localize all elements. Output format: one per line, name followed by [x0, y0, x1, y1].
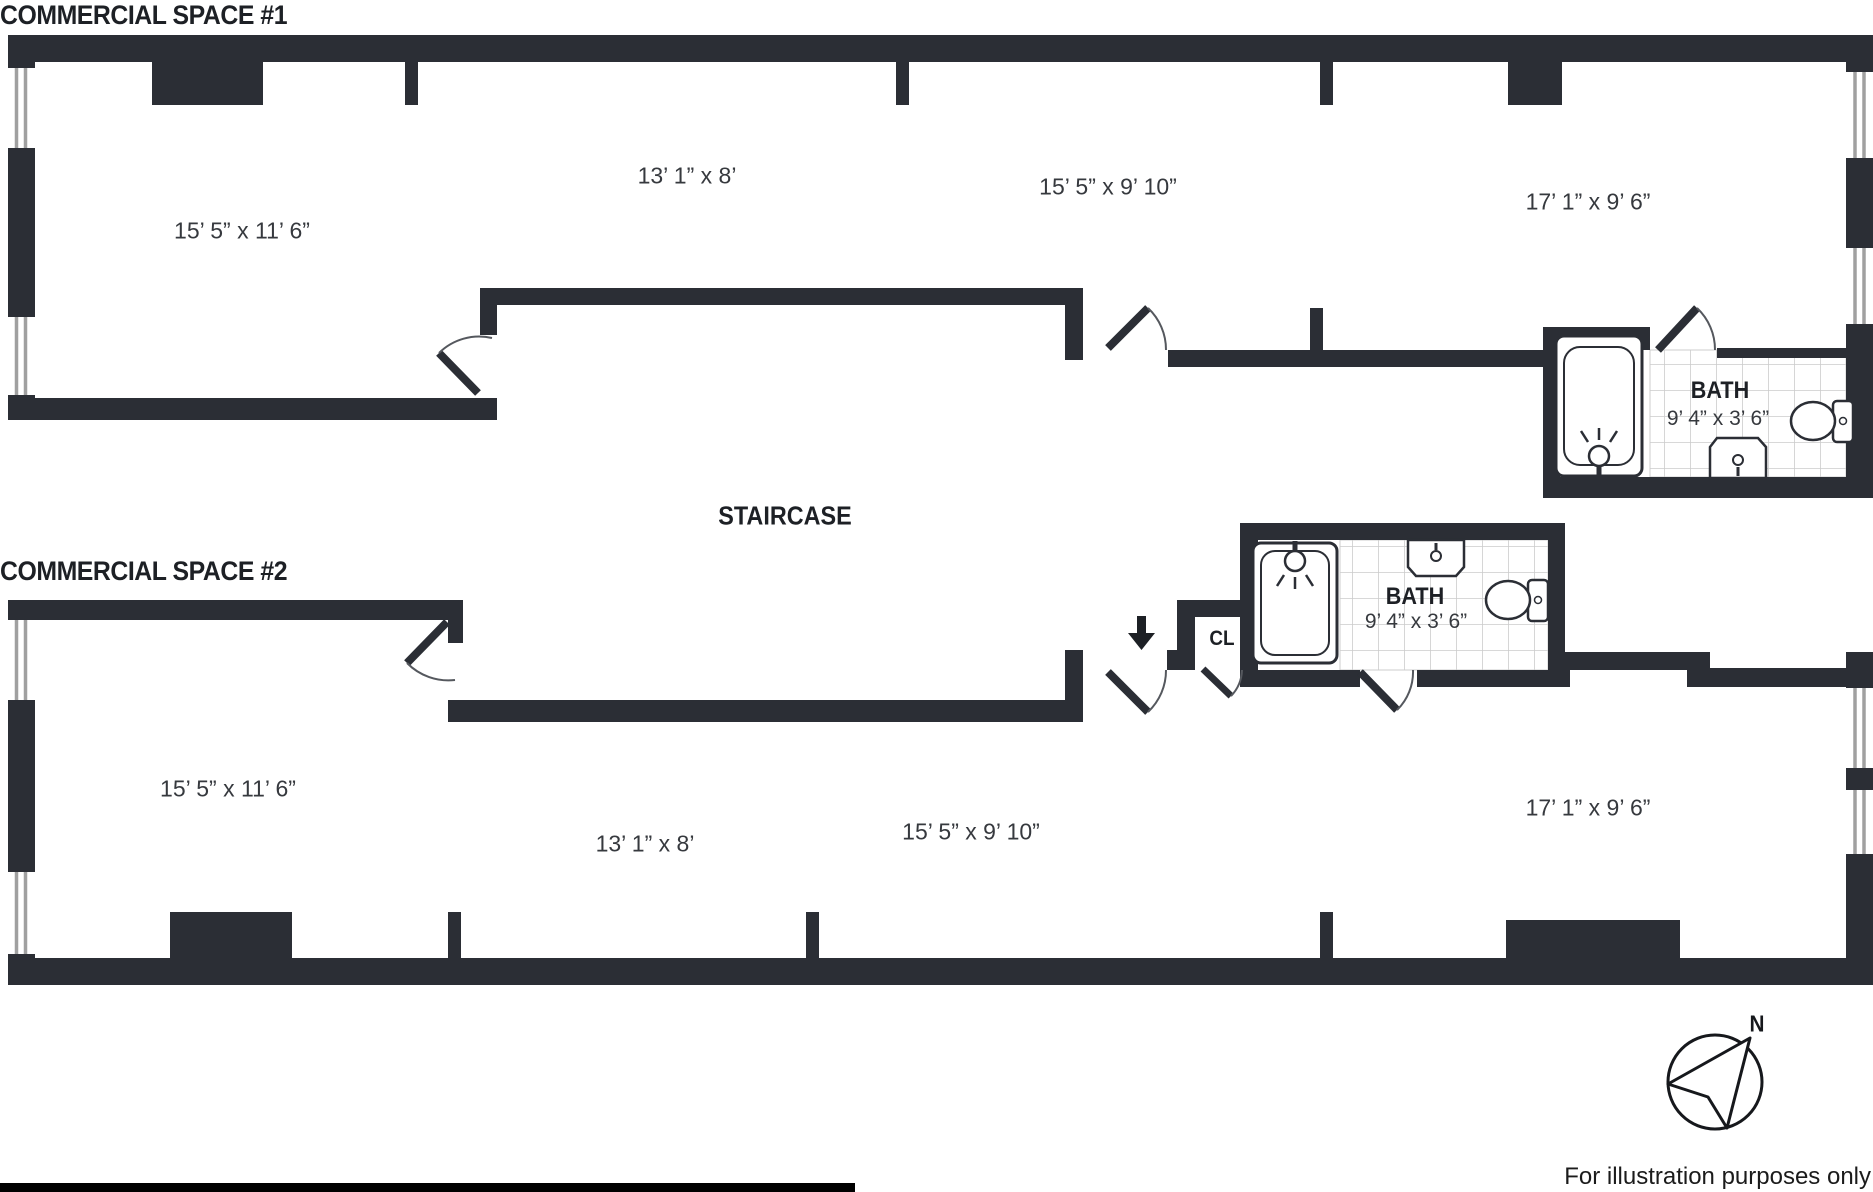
bath2-label: BATH: [1386, 583, 1444, 611]
space1-title: COMMERCIAL SPACE #1: [0, 0, 287, 31]
window-left-upper-1: [8, 68, 35, 148]
window-right-lower-2: [1846, 790, 1873, 854]
window-right-upper-1: [1846, 72, 1873, 158]
window-left-upper-2: [8, 620, 35, 700]
sink-icon-bath1: [1710, 438, 1766, 478]
floor-plan-image: COMMERCIAL SPACE #1 COMMERCIAL SPACE #2 …: [0, 0, 1873, 1192]
window-right-upper-2: [1846, 688, 1873, 768]
door-bath2: [1360, 670, 1413, 710]
bathtub-icon-bath1: [1556, 336, 1642, 478]
door-staircase-space2-right: [1108, 670, 1166, 712]
door-bath1: [1658, 308, 1715, 350]
closet-label: CL: [1209, 627, 1234, 651]
bath2-dims: 9’ 4” x 3’ 6”: [1365, 610, 1467, 634]
space1-room1-dims: 15’ 5” x 11’ 6”: [174, 218, 310, 245]
floorplan-canvas: [0, 0, 1873, 1192]
bottom-edge-bar: [0, 1183, 855, 1192]
space1-room4-dims: 17’ 1” x 9’ 6”: [1526, 189, 1651, 216]
space2-room4-dims: 17’ 1” x 9’ 6”: [1526, 795, 1651, 822]
window-left-lower-1: [8, 317, 35, 395]
door-closet: [1203, 669, 1242, 696]
bath1-dims: 9’ 4” x 3’ 6”: [1667, 407, 1769, 431]
bath1-label: BATH: [1691, 377, 1749, 405]
window-right-lower-1: [1846, 248, 1873, 324]
space1-room2-dims: 13’ 1” x 8’: [638, 163, 737, 190]
compass-north-label: N: [1750, 1011, 1765, 1038]
space2-room3-dims: 15’ 5” x 9’ 10”: [902, 819, 1040, 846]
window-left-lower-2: [8, 872, 35, 954]
door-staircase-space1-left: [439, 337, 492, 393]
door-staircase-space2-left: [407, 622, 455, 680]
space1-room3-dims: 15’ 5” x 9’ 10”: [1039, 174, 1177, 201]
compass-icon: [1668, 1035, 1762, 1129]
space2-title: COMMERCIAL SPACE #2: [0, 556, 287, 587]
toilet-icon-bath1: [1791, 401, 1853, 442]
entry-arrow-icon: [1128, 616, 1155, 650]
bathtub-icon-bath2: [1253, 541, 1337, 663]
space2-room1-dims: 15’ 5” x 11’ 6”: [160, 776, 296, 803]
space2-room2-dims: 13’ 1” x 8’: [596, 831, 695, 858]
disclaimer-text: For illustration purposes only: [1564, 1163, 1871, 1191]
sink-icon-bath2: [1408, 540, 1464, 576]
toilet-icon-bath2: [1486, 580, 1548, 621]
door-staircase-space1-right: [1108, 308, 1166, 350]
staircase-label: STAIRCASE: [718, 501, 851, 532]
